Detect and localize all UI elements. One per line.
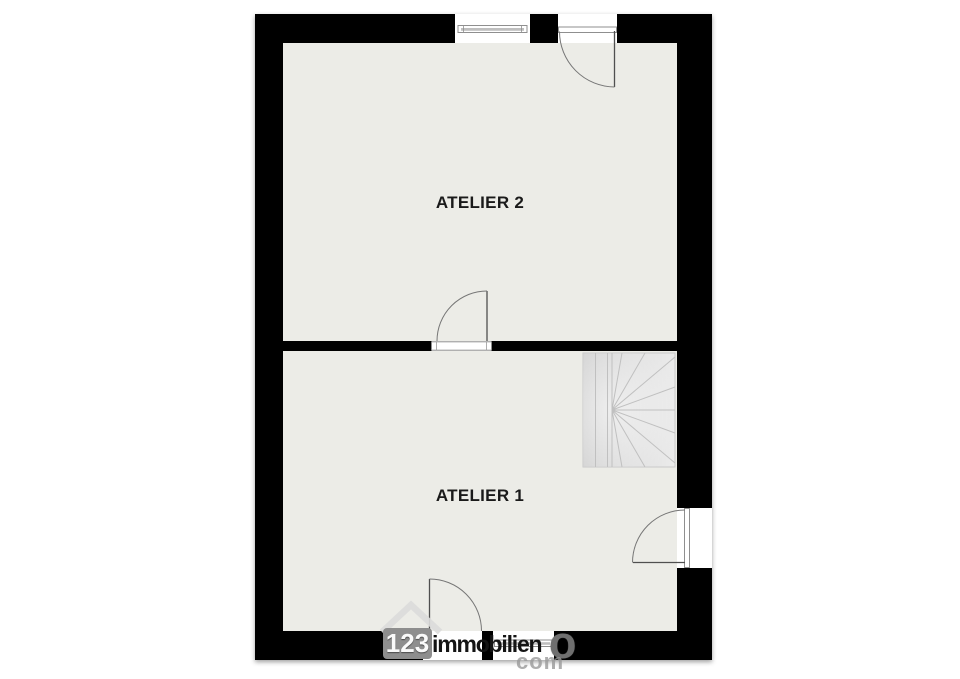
room-label-atelier-2: ATELIER 2 [436,193,524,213]
right-door-opening [677,508,712,568]
room-label-atelier-1: ATELIER 1 [436,486,524,506]
staircase [583,353,675,467]
floor-plan [0,0,960,679]
watermark-badge: 123 [383,628,432,659]
watermark-second-line: com [516,651,564,673]
window-top [458,26,527,33]
room-floor-atelier-2 [283,43,677,341]
